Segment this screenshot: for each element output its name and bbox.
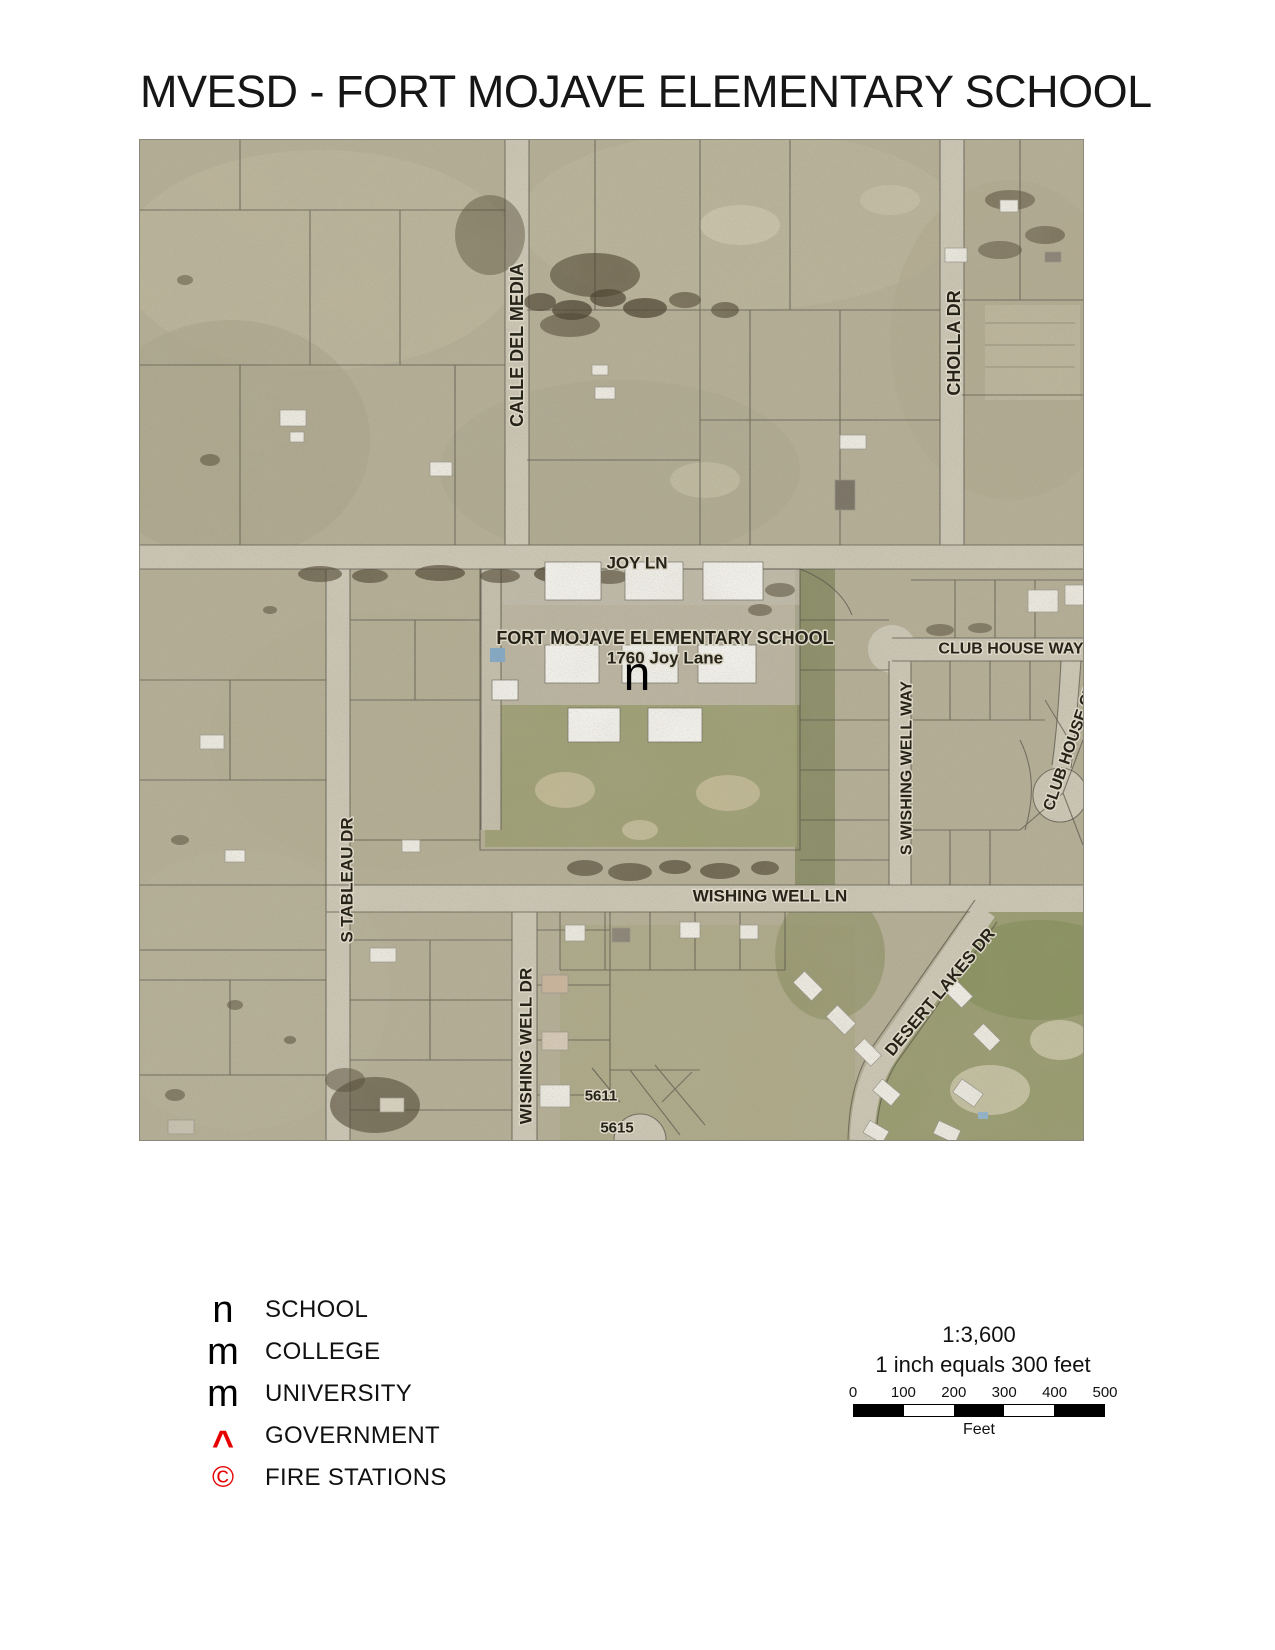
legend-item-school: n SCHOOL <box>195 1289 447 1331</box>
scale-tick-200: 200 <box>941 1384 966 1401</box>
legend-label-university: UNIVERSITY <box>265 1380 412 1408</box>
street-label-cholla-dr: CHOLLA DR <box>944 290 964 395</box>
street-label-wishing-well-dr: WISHING WELL DR <box>517 968 536 1124</box>
street-label-s-wishing-well-way: S WISHING WELL WAY <box>899 681 916 856</box>
scale-bar-ticks: 0 100 200 300 400 500 <box>853 1384 1105 1402</box>
street-label-calle-del-media: CALLE DEL MEDIA <box>507 263 527 427</box>
street-label-joy-ln: JOY LN <box>606 554 667 573</box>
page-title: MVESD - FORT MOJAVE ELEMENTARY SCHOOL <box>140 66 1083 118</box>
map-document-page: MVESD - FORT MOJAVE ELEMENTARY SCHOOL <box>0 0 1275 1650</box>
aerial-map: JOY LN CALLE DEL MEDIA CHOLLA DR FORT MO… <box>140 140 1083 1140</box>
legend-item-government: ^ GOVERNMENT <box>195 1415 447 1457</box>
parcel-number-5611: 5611 <box>585 1088 618 1105</box>
scalebar-segment <box>904 1405 954 1416</box>
parcel-number-5615: 5615 <box>600 1120 633 1137</box>
scalebar-segment <box>954 1405 1004 1416</box>
fire-station-marker-icon: © <box>195 1463 251 1493</box>
street-label-club-house-way: CLUB HOUSE WAY <box>938 641 1083 658</box>
legend-label-college: COLLEGE <box>265 1338 380 1366</box>
scale-tick-300: 300 <box>992 1384 1017 1401</box>
legend-item-university: m UNIVERSITY <box>195 1373 447 1415</box>
legend-item-college: m COLLEGE <box>195 1331 447 1373</box>
scale-tick-400: 400 <box>1042 1384 1067 1401</box>
scale-tick-500: 500 <box>1092 1384 1117 1401</box>
scale-tick-0: 0 <box>849 1384 857 1401</box>
school-name-label: FORT MOJAVE ELEMENTARY SCHOOL <box>496 628 833 648</box>
scalebar-segment <box>1054 1405 1104 1416</box>
legend-label-fire-stations: FIRE STATIONS <box>265 1464 447 1492</box>
school-marker-icon: n <box>195 1291 251 1329</box>
scale-unit-label: Feet <box>853 1421 1105 1439</box>
street-label-s-tableau-dr: S TABLEAU DR <box>338 817 357 942</box>
street-label-wishing-well-ln: WISHING WELL LN <box>693 887 848 906</box>
scale-bar: 0 100 200 300 400 500 Feet <box>853 1384 1105 1439</box>
scale-caption: 1 inch equals 300 feet <box>833 1352 1133 1378</box>
aerial-map-canvas: JOY LN CALLE DEL MEDIA CHOLLA DR FORT MO… <box>140 140 1083 1140</box>
scalebar-segment <box>1004 1405 1054 1416</box>
scale-ratio: 1:3,600 <box>853 1322 1105 1348</box>
government-marker-icon: ^ <box>195 1426 251 1464</box>
school-marker-icon: n <box>624 648 651 701</box>
scale-tick-100: 100 <box>891 1384 916 1401</box>
scalebar-segment <box>854 1405 904 1416</box>
college-marker-icon: m <box>195 1333 251 1371</box>
university-marker-icon: m <box>195 1375 251 1413</box>
legend-label-school: SCHOOL <box>265 1296 368 1324</box>
scale-bar-segments <box>853 1404 1105 1417</box>
legend-label-government: GOVERNMENT <box>265 1422 440 1450</box>
legend: n SCHOOL m COLLEGE m UNIVERSITY ^ GOVERN… <box>195 1289 447 1499</box>
